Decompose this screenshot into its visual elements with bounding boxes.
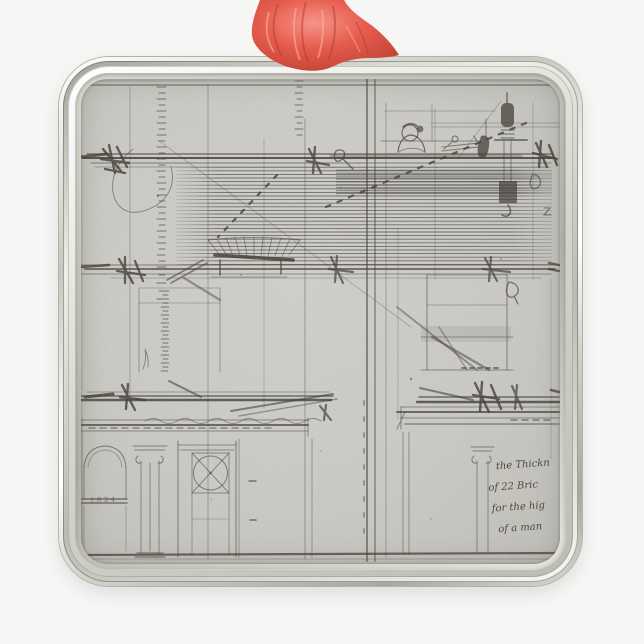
product-photo: the Thickn of 22 Bric for the hig of a m… (0, 0, 644, 644)
date-inscription: 1824 (90, 496, 118, 505)
ribbon-knot (252, 0, 399, 71)
ornament-rim-band: the Thickn of 22 Bric for the hig of a m… (63, 61, 578, 582)
handwritten-annotation: the Thickn of 22 Bric for the hig of a m… (486, 449, 560, 540)
ornament-lip: the Thickn of 22 Bric for the hig of a m… (75, 73, 566, 570)
ribbon (238, 0, 408, 78)
ornament-outer-rim: the Thickn of 22 Bric for the hig of a m… (59, 57, 582, 586)
ornament-rim-inner: the Thickn of 22 Bric for the hig of a m… (68, 66, 573, 577)
artwork-paper: the Thickn of 22 Bric for the hig of a m… (81, 79, 560, 564)
scaffold-board-hatch (176, 167, 552, 265)
